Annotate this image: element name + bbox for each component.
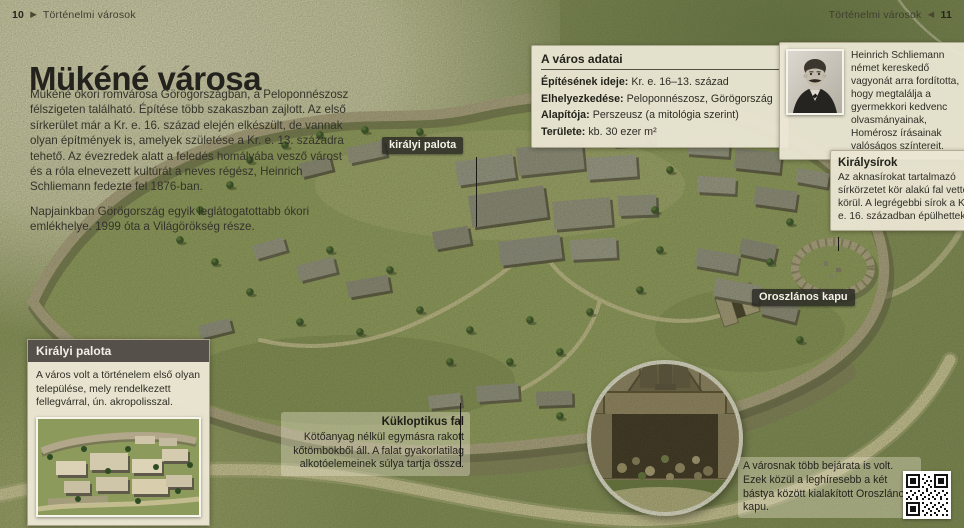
page-number-right: 11 bbox=[941, 9, 953, 21]
city-data-title: A város adatai bbox=[541, 52, 779, 70]
city-data-value: Kr. e. 16–13. század bbox=[631, 76, 728, 88]
city-data-row: Építésének ideje: Kr. e. 16–13. század bbox=[541, 74, 779, 91]
cyclopean-wall-note: Kükloptikus fal Kötőanyag nélkül egymásr… bbox=[281, 412, 470, 476]
city-data-row: Elhelyezkedése: Peloponnészosz, Görögors… bbox=[541, 91, 779, 108]
folio-right: Történelmi városok ◀ 11 bbox=[829, 9, 952, 21]
city-data-row: Alapítója: Perszeusz (a mitológia szerin… bbox=[541, 107, 779, 124]
page-arrow-left-icon: ◀ bbox=[925, 9, 938, 19]
cyclopean-wall-leader-line bbox=[460, 403, 461, 467]
page-number-left: 10 bbox=[12, 9, 24, 21]
page-arrow-right-icon: ▶ bbox=[27, 9, 40, 19]
schliemann-panel: Heinrich Schliemann német kereskedő vagy… bbox=[779, 42, 964, 160]
royal-tombs-text: Az aknasírokat tartalmazó sírkörzetet kö… bbox=[838, 171, 964, 223]
royal-palace-render bbox=[36, 417, 201, 517]
royal-palace-box: Királyi palota A város volt a történelem… bbox=[27, 339, 210, 526]
lion-gate-label-chip: Oroszlános kapu bbox=[752, 289, 855, 306]
royal-palace-box-text: A város volt a történelem első olyan tel… bbox=[28, 362, 209, 417]
intro-text: Mükéné ókori romvárosa Görögországban, a… bbox=[30, 87, 355, 244]
royal-palace-box-title: Királyi palota bbox=[28, 340, 209, 362]
intro-paragraph-2: Napjainkban Görögország egyik leglátogat… bbox=[30, 204, 355, 235]
royal-tombs-leader-line bbox=[838, 237, 839, 251]
city-data-value: kb. 30 ezer m² bbox=[588, 126, 656, 138]
entrances-note: A városnak több bejárata is volt. Ezek k… bbox=[738, 457, 921, 518]
folio-left: 10 ▶ Történelmi városok bbox=[12, 9, 136, 21]
city-data-value: Peloponnészosz, Görögország bbox=[627, 93, 773, 105]
royal-tombs-panel: Királysírok Az aknasírokat tartalmazó sí… bbox=[830, 150, 964, 231]
palace-label-chip: királyi palota bbox=[382, 137, 463, 154]
royal-tombs-title: Királysírok bbox=[838, 157, 964, 169]
palace-leader-line bbox=[476, 157, 477, 227]
city-data-row: Területe: kb. 30 ezer m² bbox=[541, 124, 779, 141]
cyclopean-wall-title: Kükloptikus fal bbox=[287, 415, 464, 430]
schliemann-text: Heinrich Schliemann német kereskedő vagy… bbox=[851, 49, 964, 153]
intro-paragraph-1: Mükéné ókori romvárosa Görögországban, a… bbox=[30, 87, 355, 195]
city-data-label: Alapítója: bbox=[541, 109, 590, 121]
qr-code bbox=[903, 471, 951, 519]
book-spread: 10 ▶ Történelmi városok Történelmi város… bbox=[0, 0, 964, 528]
city-data-label: Területe: bbox=[541, 126, 585, 138]
schliemann-portrait bbox=[786, 49, 844, 115]
city-data-panel: A város adatai Építésének ideje: Kr. e. … bbox=[531, 45, 789, 148]
folio-left-title: Történelmi városok bbox=[43, 9, 136, 21]
folio-right-title: Történelmi városok bbox=[829, 9, 922, 21]
city-data-value: Perszeusz (a mitológia szerint) bbox=[593, 109, 739, 121]
city-data-label: Elhelyezkedése: bbox=[541, 93, 624, 105]
cyclopean-wall-text: Kötőanyag nélkül egymásra rakott kőtömbö… bbox=[293, 431, 464, 471]
city-data-label: Építésének ideje: bbox=[541, 76, 628, 88]
